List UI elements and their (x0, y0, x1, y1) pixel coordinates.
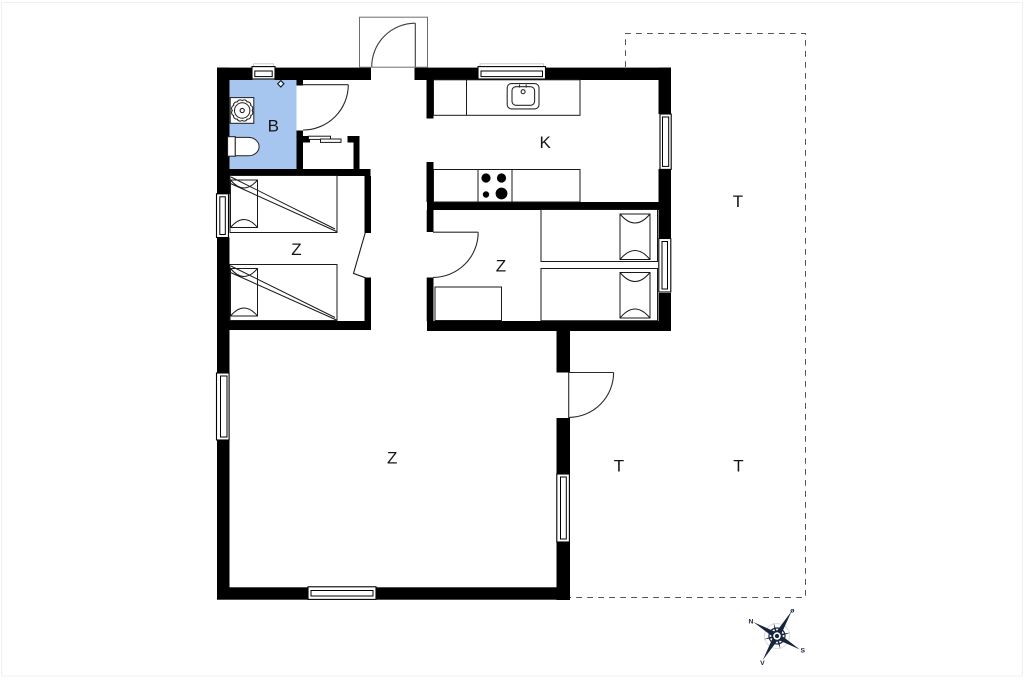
svg-text:Z: Z (387, 449, 397, 468)
svg-text:Z: Z (291, 240, 301, 259)
svg-text:N: N (749, 619, 754, 626)
svg-text:T: T (733, 192, 743, 211)
svg-text:T: T (614, 457, 624, 476)
svg-text:B: B (268, 117, 279, 136)
svg-text:S: S (801, 647, 806, 654)
svg-text:K: K (540, 133, 552, 152)
svg-text:Z: Z (496, 257, 506, 276)
svg-text:T: T (733, 457, 743, 476)
svg-text:V: V (760, 660, 765, 667)
